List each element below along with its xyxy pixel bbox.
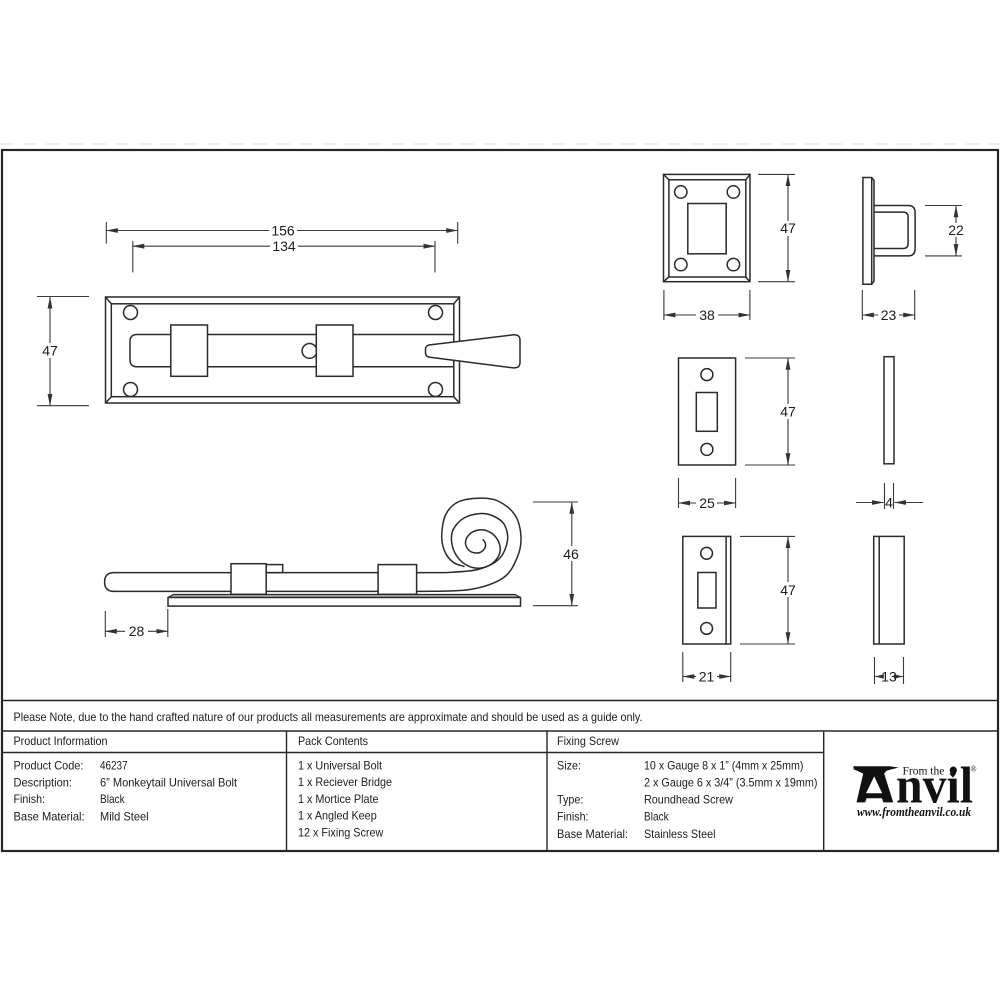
svg-text:12 x Fixing Screw: 12 x Fixing Screw xyxy=(298,825,384,839)
svg-text:23: 23 xyxy=(881,307,897,323)
svg-text:From the: From the xyxy=(903,766,945,778)
svg-text:®: ® xyxy=(971,765,977,774)
svg-text:1 x Angled Keep: 1 x Angled Keep xyxy=(298,809,377,823)
svg-text:4: 4 xyxy=(885,494,893,510)
svg-text:6” Monkeytail Universal Bolt: 6” Monkeytail Universal Bolt xyxy=(100,776,238,790)
svg-text:10 x Gauge 8 x 1” (4mm x 25mm): 10 x Gauge 8 x 1” (4mm x 25mm) xyxy=(644,758,803,772)
svg-text:46237: 46237 xyxy=(100,758,128,772)
svg-text:Black: Black xyxy=(644,810,669,824)
svg-text:Type:: Type: xyxy=(557,792,583,806)
svg-text:47: 47 xyxy=(780,582,796,598)
svg-text:21: 21 xyxy=(699,668,715,684)
svg-text:46: 46 xyxy=(563,546,579,562)
svg-text:28: 28 xyxy=(129,623,145,639)
svg-text:1 x Universal Bolt: 1 x Universal Bolt xyxy=(298,759,383,773)
svg-text:1 x Mortice Plate: 1 x Mortice Plate xyxy=(298,792,379,806)
svg-text:Base Material:: Base Material: xyxy=(557,827,628,841)
svg-text:1 x Reciever Bridge: 1 x Reciever Bridge xyxy=(298,775,392,789)
svg-text:Product Code:: Product Code: xyxy=(14,758,84,772)
svg-text:47: 47 xyxy=(780,403,796,419)
svg-text:Roundhead Screw: Roundhead Screw xyxy=(644,792,733,806)
svg-text:156: 156 xyxy=(271,222,295,238)
svg-text:47: 47 xyxy=(780,220,796,236)
svg-text:www.fromtheanvil.co.uk: www.fromtheanvil.co.uk xyxy=(857,804,971,819)
svg-text:Size:: Size: xyxy=(557,758,581,772)
svg-text:Description:: Description: xyxy=(14,776,73,790)
svg-text:Please Note, due to the hand c: Please Note, due to the hand crafted nat… xyxy=(14,710,643,724)
svg-text:Fixing Screw: Fixing Screw xyxy=(557,734,619,748)
svg-text:Base Material:: Base Material: xyxy=(14,809,85,823)
svg-text:22: 22 xyxy=(948,222,964,238)
svg-text:Stainless Steel: Stainless Steel xyxy=(644,827,716,841)
svg-text:Black: Black xyxy=(100,792,125,806)
svg-text:134: 134 xyxy=(272,238,296,254)
svg-text:Finish:: Finish: xyxy=(557,810,589,824)
svg-text:Mild Steel: Mild Steel xyxy=(100,809,149,823)
svg-text:47: 47 xyxy=(42,342,58,358)
svg-text:13: 13 xyxy=(881,668,897,684)
svg-text:2 x Gauge 6 x 3/4” (3.5mm x 19: 2 x Gauge 6 x 3/4” (3.5mm x 19mm) xyxy=(644,775,818,789)
svg-text:Pack Contents: Pack Contents xyxy=(298,734,368,748)
svg-text:Product Information: Product Information xyxy=(14,734,108,748)
svg-text:Finish:: Finish: xyxy=(14,792,46,806)
svg-text:25: 25 xyxy=(699,495,715,511)
svg-text:38: 38 xyxy=(699,307,715,323)
